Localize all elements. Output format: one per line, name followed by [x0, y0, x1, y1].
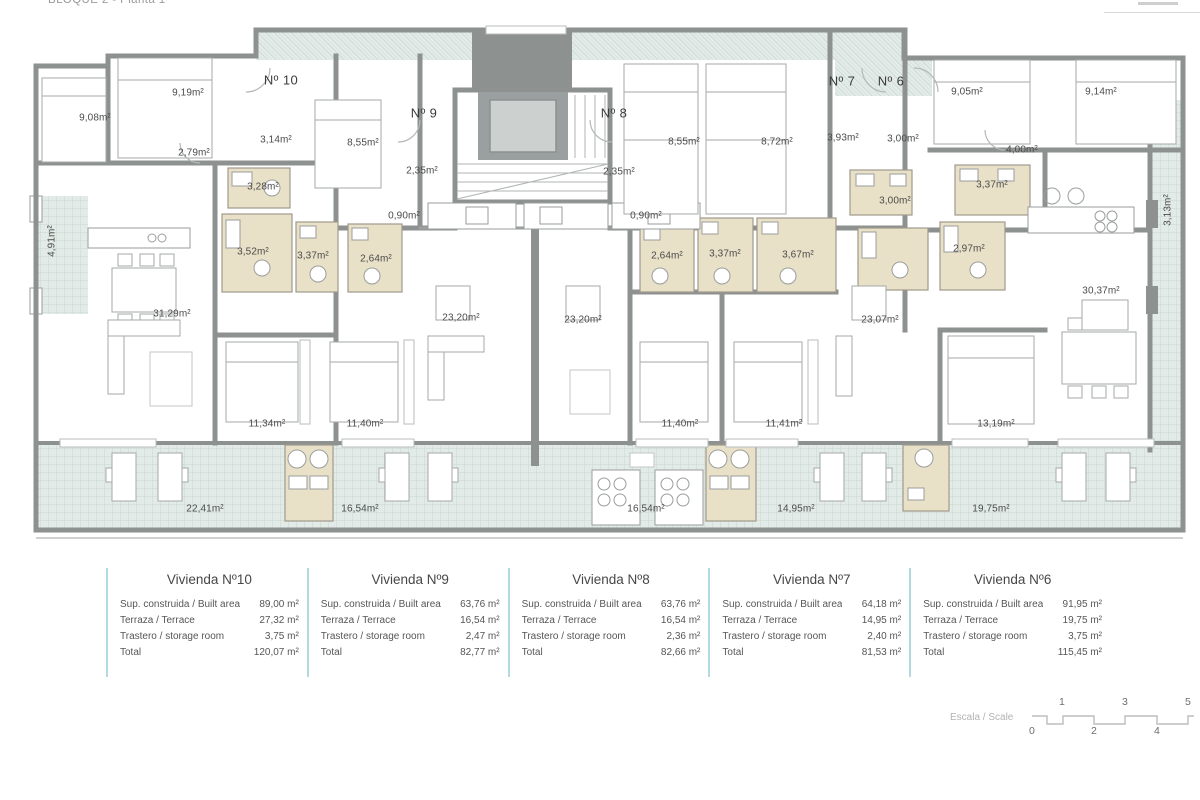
unit-number-label: Nº 6	[878, 74, 905, 89]
legend-column-vivienda-6: Vivienda Nº6 Sup. construida / Built are…	[909, 568, 1110, 677]
legend-row-label: Sup. construida / Built area	[321, 597, 441, 613]
scale-number: 3	[1122, 696, 1128, 708]
legend-row-label: Trastero / storage room	[923, 629, 1027, 645]
scale-label: Escala / Scale	[950, 712, 1013, 723]
room-area-label: 3,93m²	[827, 133, 859, 144]
legend-row-label: Total	[522, 645, 543, 661]
unit-number-label: Nº 9	[411, 106, 438, 121]
legend-row: Terraza / Terrace19,75 m²	[923, 613, 1102, 629]
legend-row-label: Sup. construida / Built area	[522, 597, 642, 613]
legend-column-vivienda-9: Vivienda Nº9 Sup. construida / Built are…	[307, 568, 508, 677]
legend-row-value: 3,75 m²	[265, 629, 299, 645]
elevator-icon	[478, 92, 568, 160]
legend-row: Terraza / Terrace27,32 m²	[120, 613, 299, 629]
legend-row-label: Trastero / storage room	[522, 629, 626, 645]
room-area-label: 31,29m²	[153, 309, 190, 320]
room-area-label: 30,37m²	[1082, 286, 1119, 297]
legend-row-value: 2,36 m²	[666, 629, 700, 645]
legend-row: Total81,53 m²	[722, 645, 901, 661]
legend-row-label: Trastero / storage room	[120, 629, 224, 645]
room-area-label: 9,19m²	[172, 88, 204, 99]
room-area-label: 11,41m²	[766, 419, 803, 430]
legend-row: Trastero / storage room2,36 m²	[522, 629, 701, 645]
legend-row-value: 2,47 m²	[466, 629, 500, 645]
room-area-label: 3,37m²	[976, 180, 1008, 191]
legend: Vivienda Nº10 Sup. construida / Built ar…	[106, 568, 1110, 677]
legend-row-label: Trastero / storage room	[722, 629, 826, 645]
legend-row-value: 89,00 m²	[259, 597, 298, 613]
titleblock-line	[1104, 12, 1200, 13]
legend-row: Trastero / storage room3,75 m²	[120, 629, 299, 645]
room-area-label: 23,07m²	[861, 315, 898, 326]
legend-row-value: 27,32 m²	[259, 613, 298, 629]
room-area-label: 11,40m²	[347, 419, 384, 430]
legend-row-label: Terraza / Terrace	[923, 613, 998, 629]
legend-row-label: Terraza / Terrace	[321, 613, 396, 629]
room-area-label: 8,55m²	[347, 138, 379, 149]
legend-row-label: Total	[923, 645, 944, 661]
room-area-label: 2,35m²	[603, 167, 635, 178]
room-area-label: 16,54m²	[341, 504, 378, 515]
legend-row-value: 82,77 m²	[460, 645, 499, 661]
room-area-label: 2,64m²	[360, 254, 392, 265]
legend-row: Total82,66 m²	[522, 645, 701, 661]
legend-row-value: 64,18 m²	[862, 597, 901, 613]
unit-number-label: Nº 7	[829, 74, 856, 89]
legend-row: Sup. construida / Built area64,18 m²	[722, 597, 901, 613]
legend-title: Vivienda Nº7	[722, 572, 901, 587]
unit-number-label: Nº 8	[601, 106, 628, 121]
room-area-label: 14,95m²	[777, 504, 814, 515]
legend-row-value: 19,75 m²	[1063, 613, 1102, 629]
unit-number-label: Nº 10	[264, 73, 298, 88]
scale-number: 4	[1154, 725, 1160, 737]
legend-row-value: 3,75 m²	[1068, 629, 1102, 645]
legend-row: Trastero / storage room3,75 m²	[923, 629, 1102, 645]
room-area-label: 2,64m²	[651, 251, 683, 262]
legend-row-value: 2,40 m²	[867, 629, 901, 645]
room-area-label: 9,05m²	[951, 87, 983, 98]
legend-row-label: Sup. construida / Built area	[923, 597, 1043, 613]
legend-row-value: 91,95 m²	[1063, 597, 1102, 613]
page-title: BLOQUE 2 - Planta 1ª	[48, 0, 170, 6]
legend-row-value: 16,54 m²	[661, 613, 700, 629]
legend-row: Terraza / Terrace16,54 m²	[522, 613, 701, 629]
room-area-label: 3,37m²	[297, 251, 329, 262]
legend-column-vivienda-8: Vivienda Nº8 Sup. construida / Built are…	[508, 568, 709, 677]
legend-row: Sup. construida / Built area89,00 m²	[120, 597, 299, 613]
legend-row-label: Total	[321, 645, 342, 661]
legend-row-label: Terraza / Terrace	[722, 613, 797, 629]
scale-number: 1	[1059, 696, 1065, 708]
room-area-label: 16,54m²	[627, 504, 664, 515]
legend-row: Trastero / storage room2,40 m²	[722, 629, 901, 645]
room-area-label: 3,28m²	[247, 182, 279, 193]
room-area-label: 23,20m²	[442, 313, 479, 324]
scale-number: 2	[1091, 725, 1097, 737]
room-area-label: 4,00m²	[1006, 145, 1038, 156]
legend-row: Sup. construida / Built area63,76 m²	[522, 597, 701, 613]
legend-row: Terraza / Terrace16,54 m²	[321, 613, 500, 629]
room-area-label: 0,90m²	[630, 211, 662, 222]
room-area-label: 3,00m²	[879, 196, 911, 207]
scale-number: 0	[1029, 725, 1035, 737]
legend-row: Total115,45 m²	[923, 645, 1102, 661]
legend-row-value: 82,66 m²	[661, 645, 700, 661]
legend-title: Vivienda Nº8	[522, 572, 701, 587]
room-area-label: 2,79m²	[178, 148, 210, 159]
legend-row: Terraza / Terrace14,95 m²	[722, 613, 901, 629]
legend-row-label: Total	[120, 645, 141, 661]
legend-row-label: Terraza / Terrace	[120, 613, 195, 629]
legend-row-value: 115,45 m²	[1058, 645, 1102, 661]
room-area-label: 3,13m²	[1163, 194, 1174, 226]
legend-column-vivienda-10: Vivienda Nº10 Sup. construida / Built ar…	[106, 568, 307, 677]
floor-plan-page: BLOQUE 2 - Planta 1ª	[0, 0, 1200, 800]
room-area-label: 2,35m²	[406, 166, 438, 177]
room-area-label: 3,52m²	[237, 247, 269, 258]
room-area-label: 8,72m²	[761, 137, 793, 148]
legend-column-vivienda-7: Vivienda Nº7 Sup. construida / Built are…	[708, 568, 909, 677]
room-area-label: 3,67m²	[782, 250, 814, 261]
room-area-label: 9,08m²	[79, 113, 111, 124]
legend-row: Total82,77 m²	[321, 645, 500, 661]
legend-row-value: 120,07 m²	[254, 645, 299, 661]
legend-row: Total120,07 m²	[120, 645, 299, 661]
legend-row-value: 81,53 m²	[862, 645, 901, 661]
legend-title: Vivienda Nº10	[120, 572, 299, 587]
room-area-label: 22,41m²	[186, 504, 223, 515]
room-area-label: 9,14m²	[1085, 87, 1117, 98]
legend-row-value: 16,54 m²	[460, 613, 499, 629]
legend-row-label: Sup. construida / Built area	[120, 597, 240, 613]
legend-row: Sup. construida / Built area63,76 m²	[321, 597, 500, 613]
room-area-label: 0,90m²	[388, 211, 420, 222]
legend-row: Trastero / storage room2,47 m²	[321, 629, 500, 645]
room-area-label: 3,14m²	[260, 135, 292, 146]
legend-row-value: 63,76 m²	[460, 597, 499, 613]
legend-row-value: 63,76 m²	[661, 597, 700, 613]
room-area-label: 4,91m²	[47, 225, 58, 257]
legend-row-label: Sup. construida / Built area	[722, 597, 842, 613]
legend-row: Sup. construida / Built area91,95 m²	[923, 597, 1102, 613]
room-area-label: 3,37m²	[709, 249, 741, 260]
legend-row-label: Trastero / storage room	[321, 629, 425, 645]
room-area-label: 8,55m²	[668, 137, 700, 148]
room-area-label: 11,40m²	[662, 419, 699, 430]
legend-title: Vivienda Nº6	[923, 572, 1102, 587]
legend-row-value: 14,95 m²	[862, 613, 901, 629]
floor-plan-drawing	[0, 0, 1200, 548]
legend-row-label: Terraza / Terrace	[522, 613, 597, 629]
legend-title: Vivienda Nº9	[321, 572, 500, 587]
titleblock-text-fragment	[1138, 2, 1178, 5]
scale-number: 5	[1185, 696, 1191, 708]
legend-row-label: Total	[722, 645, 743, 661]
room-area-label: 23,20m²	[564, 315, 601, 326]
room-area-label: 3,00m²	[887, 134, 919, 145]
room-area-label: 2,97m²	[953, 244, 985, 255]
scale-bar	[1028, 704, 1200, 736]
room-area-label: 19,75m²	[972, 504, 1009, 515]
room-area-label: 11,34m²	[249, 419, 286, 430]
room-area-label: 13,19m²	[977, 419, 1014, 430]
